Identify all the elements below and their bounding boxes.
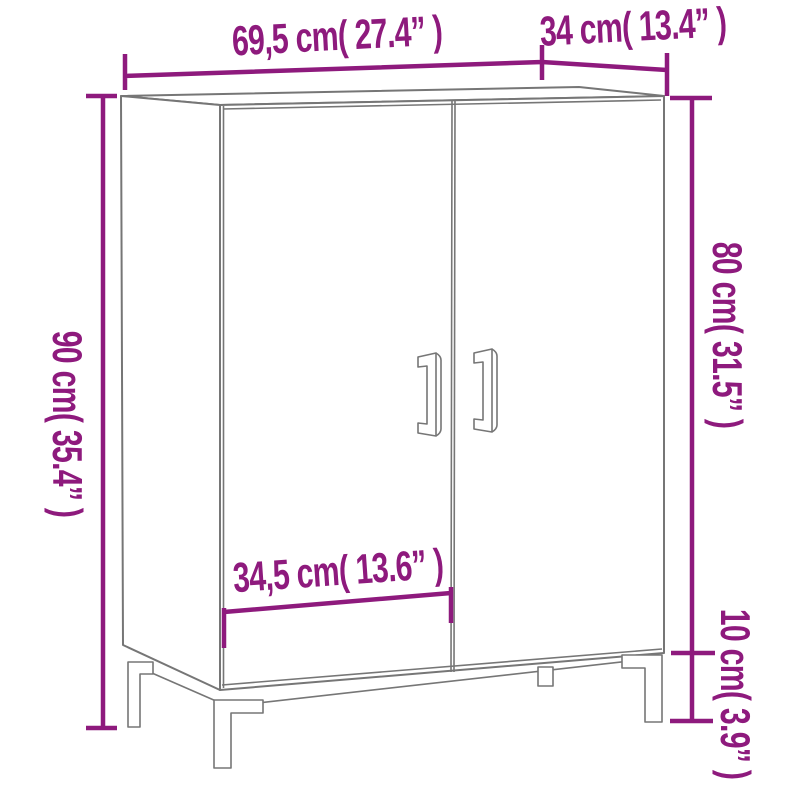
leg-front-right xyxy=(622,655,662,722)
dim-line-leg-height xyxy=(670,653,713,721)
leg-back-left xyxy=(128,662,153,727)
dim-label-depth: 34 cm( 13.4” ) xyxy=(539,0,728,56)
dim-label-leg-height: 10 cm( 3.9” ) xyxy=(711,609,759,779)
cabinet-left-panel xyxy=(121,96,220,690)
dim-label-total-height: 90 cm( 35.4” ) xyxy=(43,331,91,518)
dim-label-body-height: 80 cm( 31.5” ) xyxy=(703,242,751,429)
leg-back-right xyxy=(538,667,553,686)
dimension-diagram: 69,5 cm( 27.4” ) 34 cm( 13.4” ) 90 cm( 3… xyxy=(0,0,800,800)
cabinet-front-face xyxy=(220,96,664,690)
cabinet-line-drawing xyxy=(0,0,800,800)
leg-front-left xyxy=(214,700,263,768)
